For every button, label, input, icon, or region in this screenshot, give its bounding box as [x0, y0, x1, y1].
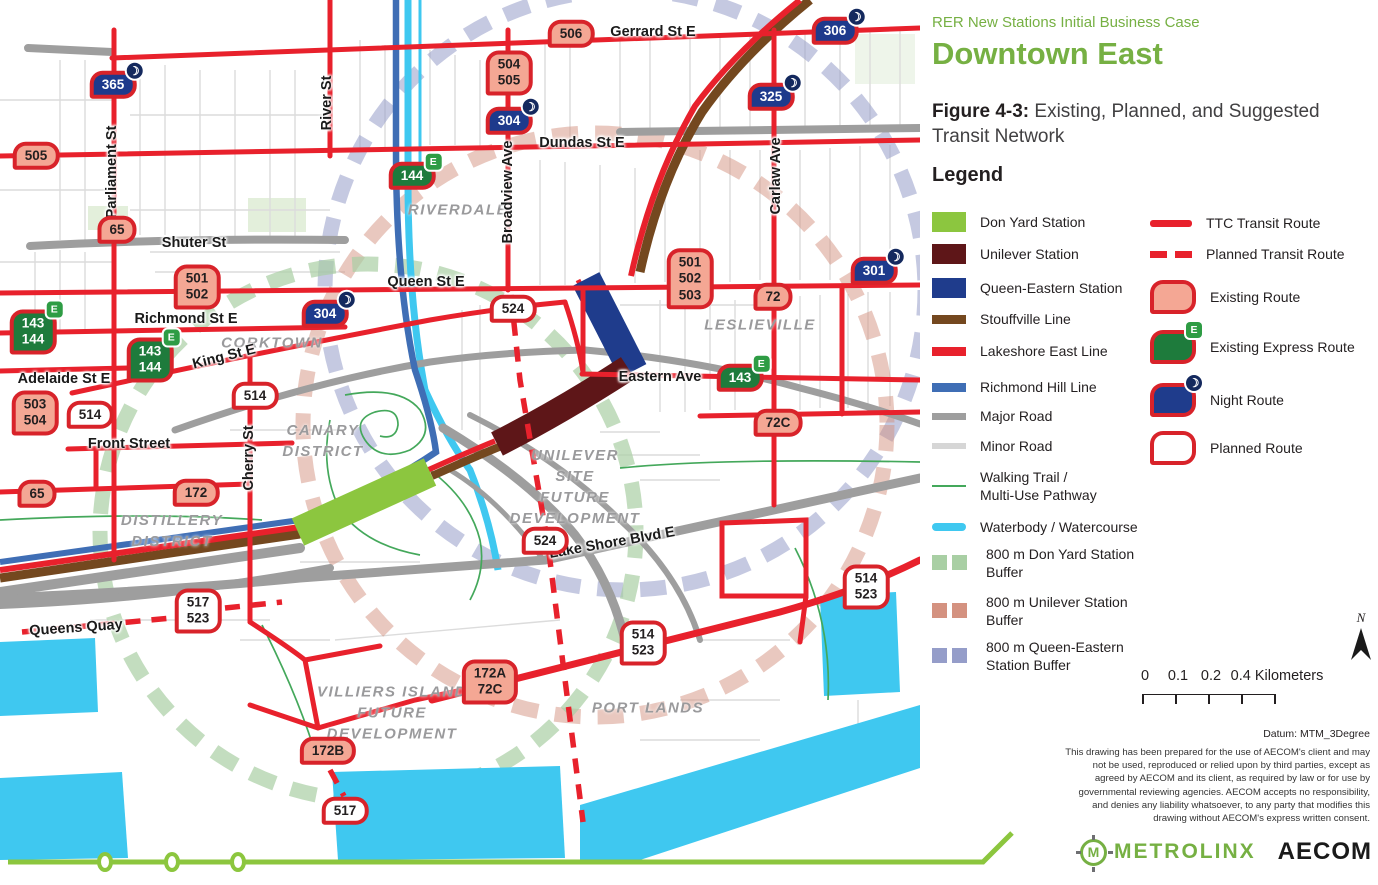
- district-label-distillery: DISTILLERY DISTRICT: [121, 510, 223, 552]
- badge-planned-swatch: [1150, 431, 1196, 465]
- legend-item-richmond-hill-line: Richmond Hill Line: [932, 378, 1097, 396]
- legend-item-queen-eastern-station: Queen-Eastern Station: [932, 278, 1122, 298]
- night-moon-icon: ☽: [887, 249, 903, 265]
- legend-item-ttc-transit-route: TTC Transit Route: [1150, 214, 1320, 232]
- legend-item-label: Queen-Eastern Station: [980, 279, 1122, 297]
- legend-item-label: Lakeshore East Line: [980, 342, 1108, 360]
- legend-item-label: Planned Route: [1210, 439, 1303, 457]
- richmond-hill-swatch: [932, 383, 966, 392]
- route-badge-503-504: 503504: [12, 391, 59, 436]
- minor-road-swatch: [932, 443, 966, 449]
- document-kicker: RER New Stations Initial Business Case: [932, 14, 1200, 31]
- legend-item-planned-transit-route: Planned Transit Route: [1150, 245, 1345, 263]
- route-badge-524: 524: [490, 295, 537, 323]
- legend-item-800-m-queen-eastern: 800 m Queen-Eastern Station Buffer: [932, 638, 1124, 674]
- major-road-swatch: [932, 413, 966, 420]
- express-icon: E: [46, 302, 62, 318]
- route-badge-304: 304☽: [302, 300, 349, 328]
- district-label-leslieville: LESLIEVILLE: [704, 315, 816, 336]
- north-arrow-icon: [1347, 626, 1375, 662]
- disclaimer-text: This drawing has been prepared for the u…: [1062, 746, 1370, 825]
- lakeshore-swatch: [932, 347, 966, 356]
- legend-item-label: Stouffville Line: [980, 310, 1071, 328]
- route-badge-524: 524: [522, 527, 569, 555]
- legend-title: Legend: [932, 164, 1003, 187]
- badge-existing-swatch: [1150, 280, 1196, 314]
- north-arrow: N: [1347, 610, 1375, 667]
- legend-item-major-road: Major Road: [932, 407, 1052, 425]
- legend-item-label: Unilever Station: [980, 245, 1079, 263]
- street-label-eastern-ave: Eastern Ave: [619, 369, 702, 385]
- street-label-adelaide-st-e: Adelaide St E: [18, 371, 111, 387]
- express-icon: E: [163, 330, 179, 346]
- district-label-riverdale: RIVERDALE: [408, 200, 508, 221]
- legend-item-label: Waterbody / Watercourse: [980, 518, 1138, 536]
- page-title: Downtown East: [932, 36, 1163, 72]
- night-moon-icon: ☽: [126, 63, 142, 79]
- route-badge-517-523: 517523: [175, 589, 222, 634]
- metrolinx-logo: M METROLINX: [1080, 839, 1256, 866]
- route-badge-144: 144E: [389, 162, 436, 190]
- route-badge-143: 143E: [717, 364, 764, 392]
- legend-item-label: Existing Express Route: [1210, 338, 1355, 356]
- legend-item-800-m-don-yard-station: 800 m Don Yard Station Buffer: [932, 545, 1134, 581]
- scale-bar-line: [1142, 694, 1276, 703]
- street-label-dundas-st-e: Dundas St E: [539, 135, 624, 151]
- route-badge-514: 514: [67, 401, 114, 429]
- figure-page: 365☽505506504505306☽304☽325☽144E65501502…: [0, 0, 1378, 885]
- district-label-canary: CANARY DISTRICT: [282, 420, 363, 462]
- buffer-blue-swatch: [932, 647, 972, 665]
- route-badge-143-144: 143144E: [127, 338, 174, 383]
- street-label-gerrard-st-e: Gerrard St E: [610, 24, 695, 40]
- express-icon: E: [753, 356, 769, 372]
- legend-item-walking-trail-: Walking Trail / Multi-Use Pathway: [932, 468, 1097, 504]
- legend-item-stouffville-line: Stouffville Line: [932, 310, 1071, 328]
- route-badge-72: 72: [753, 283, 792, 311]
- legend-item-unilever-station: Unilever Station: [932, 244, 1079, 264]
- route-badge-65: 65: [97, 216, 136, 244]
- badge-night-swatch: ☽: [1150, 383, 1196, 417]
- street-label-broadview-ave: Broadview Ave: [500, 141, 516, 244]
- queen-eastern-station-band: [586, 279, 633, 371]
- route-badge-506: 506: [548, 20, 595, 48]
- night-moon-icon: ☽: [784, 75, 800, 91]
- night-moon-icon: ☽: [848, 9, 864, 25]
- legend-item-label: Walking Trail / Multi-Use Pathway: [980, 468, 1097, 504]
- metrolinx-icon: M: [1080, 839, 1107, 866]
- street-label-queen-st-e: Queen St E: [387, 274, 464, 290]
- route-badge-72c: 72C: [754, 409, 803, 437]
- route-badge-504-505: 504505: [486, 51, 533, 96]
- footer-accent-line: [0, 820, 1030, 880]
- water-swatch: [932, 523, 966, 531]
- street-label-carlaw-ave: Carlaw Ave: [768, 137, 784, 214]
- route-badge-514-523: 514523: [843, 565, 890, 610]
- badge-express-swatch: E: [1150, 330, 1196, 364]
- route-badge-306: 306☽: [812, 17, 859, 45]
- scale-labels: 00.10.20.4 Kilometers: [1142, 668, 1378, 688]
- express-icon: E: [1186, 322, 1202, 338]
- trail-swatch: [932, 485, 966, 487]
- scale-label: 0.2: [1201, 668, 1221, 684]
- legend-item-label: Night Route: [1210, 391, 1284, 409]
- route-badge-143-144: 143144E: [10, 310, 57, 355]
- queen-eastern-swatch: [932, 278, 966, 298]
- figure-caption: Figure 4-3: Existing, Planned, and Sugge…: [932, 100, 1372, 149]
- legend-item-label: 800 m Queen-Eastern Station Buffer: [986, 638, 1124, 674]
- route-badge-501-502-503: 501502503: [667, 248, 714, 309]
- street-label-cherry-st: Cherry St: [241, 425, 257, 490]
- figure-number: Figure 4-3:: [932, 101, 1029, 122]
- route-badge-65: 65: [17, 480, 56, 508]
- datum-note: Datum: MTM_3Degree: [1263, 728, 1370, 740]
- buffer-green-swatch: [932, 554, 972, 572]
- buffer-salmon-swatch: [932, 602, 972, 620]
- route-badge-301: 301☽: [851, 257, 898, 285]
- legend-item-existing-express-route: EExisting Express Route: [1150, 330, 1355, 364]
- logos: M METROLINX AECOM: [1080, 838, 1372, 866]
- route-badge-514: 514: [232, 382, 279, 410]
- legend-item-planned-route: Planned Route: [1150, 431, 1303, 465]
- info-panel: RER New Stations Initial Business Case D…: [932, 0, 1378, 885]
- route-badge-325: 325☽: [748, 83, 795, 111]
- legend-item-label: 800 m Unilever Station Buffer: [986, 593, 1128, 629]
- stouffville-swatch: [932, 315, 966, 324]
- route-badge-514-523: 514523: [620, 621, 667, 666]
- legend-item-label: Richmond Hill Line: [980, 378, 1097, 396]
- night-moon-icon: ☽: [522, 99, 538, 115]
- night-moon-icon: ☽: [338, 292, 354, 308]
- ttc-route-swatch: [1150, 220, 1192, 227]
- route-badge-304: 304☽: [486, 107, 533, 135]
- scale-bar: 00.10.20.4 Kilometers: [1142, 668, 1378, 718]
- legend-item-minor-road: Minor Road: [932, 437, 1052, 455]
- street-label-parliament-st: Parliament St: [104, 126, 120, 219]
- night-moon-icon: ☽: [1186, 375, 1202, 391]
- legend-item-waterbody-watercourse: Waterbody / Watercourse: [932, 518, 1138, 536]
- scale-label: 0.4 Kilometers: [1231, 668, 1324, 684]
- route-badge-501-502: 501502: [174, 265, 221, 310]
- legend-item-label: Minor Road: [980, 437, 1052, 455]
- route-badge-172b: 172B: [300, 737, 356, 765]
- route-badge-172a-72c: 172A72C: [462, 660, 518, 705]
- planned-transit-swatch: [1150, 251, 1192, 258]
- legend-item-don-yard-station: Don Yard Station: [932, 212, 1085, 232]
- legend-item-lakeshore-east-line: Lakeshore East Line: [932, 342, 1108, 360]
- aecom-logo: AECOM: [1278, 838, 1372, 866]
- north-label: N: [1347, 610, 1375, 626]
- legend-item-label: Don Yard Station: [980, 213, 1085, 231]
- street-label-front-street: Front Street: [88, 436, 170, 452]
- route-badge-365: 365☽: [90, 71, 137, 99]
- express-icon: E: [425, 154, 441, 170]
- legend-item-label: Major Road: [980, 407, 1052, 425]
- legend-item-800-m-unilever-station: 800 m Unilever Station Buffer: [932, 593, 1128, 629]
- street-label-shuter-st: Shuter St: [162, 235, 226, 251]
- legend-item-night-route: ☽Night Route: [1150, 383, 1284, 417]
- district-label-unilever: UNILEVER SITE FUTURE DEVELOPMENT: [510, 445, 641, 529]
- route-badge-505: 505: [13, 142, 60, 170]
- district-label-villiers-island: VILLIERS ISLAND FUTURE DEVELOPMENT: [317, 682, 467, 745]
- map-canvas: 365☽505506504505306☽304☽325☽144E65501502…: [0, 0, 920, 885]
- don-yard-swatch: [932, 212, 966, 232]
- unilever-swatch: [932, 244, 966, 264]
- legend-item-label: 800 m Don Yard Station Buffer: [986, 545, 1134, 581]
- scale-label: 0.1: [1168, 668, 1188, 684]
- street-label-richmond-st-e: Richmond St E: [134, 311, 237, 327]
- legend-item-label: Existing Route: [1210, 288, 1300, 306]
- scale-label: 0: [1141, 668, 1149, 684]
- route-badge-172: 172: [173, 479, 220, 507]
- district-label-port-lands: PORT LANDS: [592, 698, 704, 719]
- metrolinx-wordmark: METROLINX: [1114, 840, 1256, 864]
- route-badge-517: 517: [322, 797, 369, 825]
- legend-item-label: Planned Transit Route: [1206, 245, 1345, 263]
- legend-item-existing-route: Existing Route: [1150, 280, 1300, 314]
- street-label-river-st: River St: [319, 76, 335, 131]
- legend-item-label: TTC Transit Route: [1206, 214, 1320, 232]
